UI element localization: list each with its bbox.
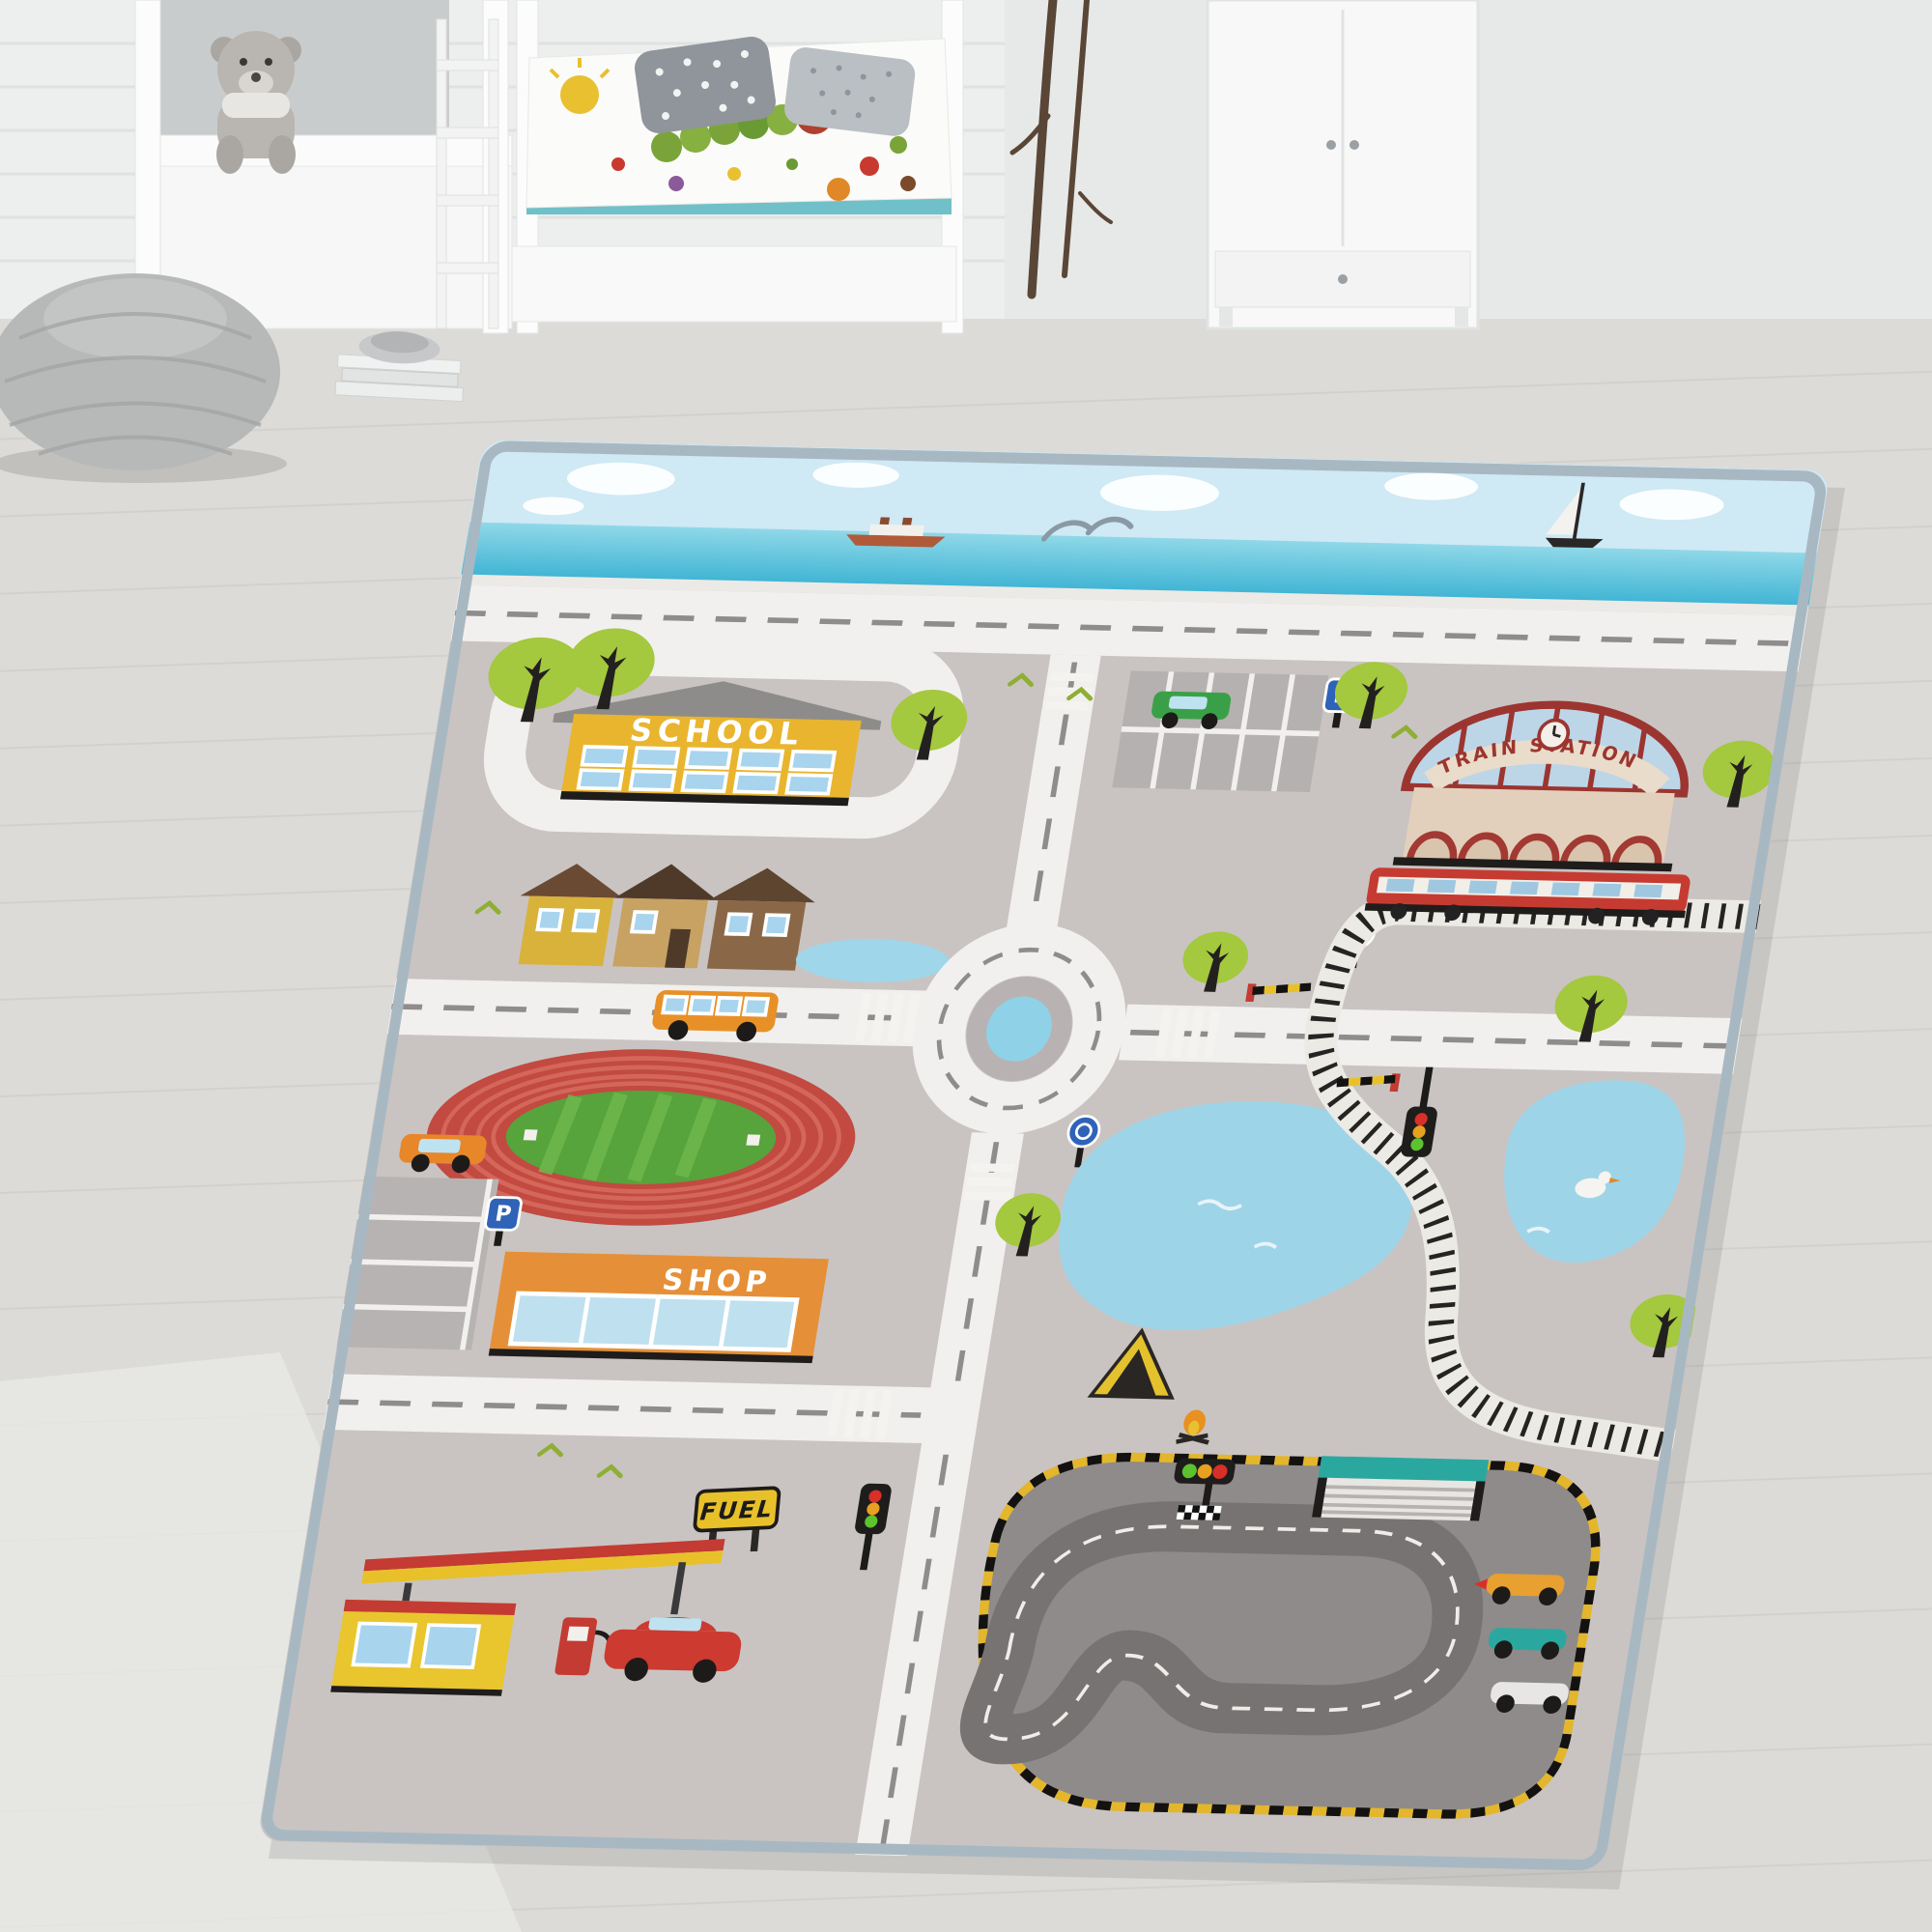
- shop-building: SHOP: [489, 1252, 829, 1364]
- pit-garage: [1312, 1456, 1489, 1520]
- photo-children-room-play-rug: SCHOOL: [0, 0, 1932, 1932]
- shop-label: SHOP: [660, 1264, 774, 1299]
- teddy-bear: [211, 31, 301, 174]
- race-track: [952, 1449, 1611, 1817]
- play-rug: SCHOOL: [257, 440, 1836, 1872]
- zebra-north: [1045, 672, 1094, 710]
- roundabout: [927, 948, 1111, 1109]
- zebra-south: [964, 1163, 1015, 1201]
- scene-canvas: SCHOOL: [0, 0, 1932, 1932]
- fuel-building: [330, 1600, 516, 1696]
- houses-row: [509, 861, 820, 971]
- fuel-label: FUEL: [698, 1494, 775, 1525]
- footboard: [512, 246, 956, 322]
- white-wardrobe: [1207, 0, 1478, 328]
- pattern-pillow: [782, 45, 917, 137]
- checkered-line: [1177, 1505, 1222, 1520]
- school-label: SCHOOL: [627, 712, 807, 753]
